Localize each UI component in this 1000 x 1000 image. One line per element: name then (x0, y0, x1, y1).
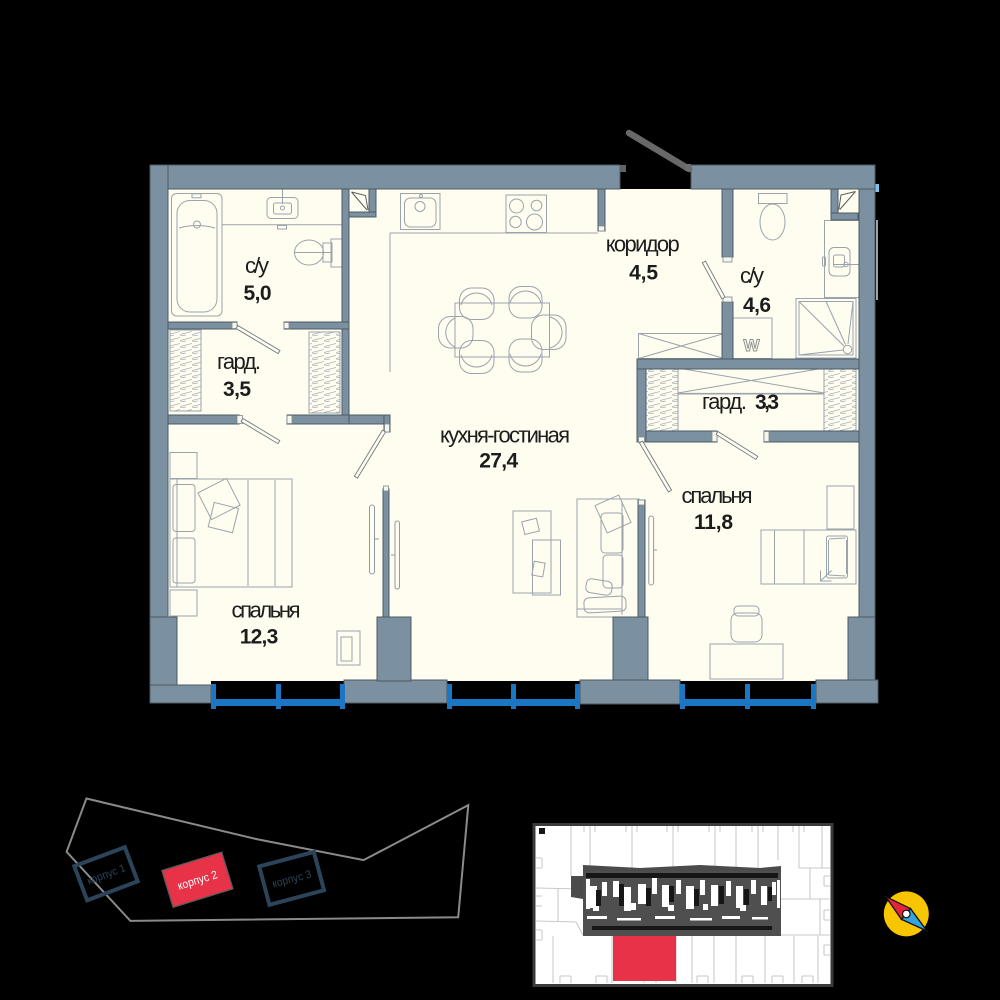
svg-text:спальня: спальня (682, 483, 753, 508)
svg-text:5,0: 5,0 (244, 282, 272, 305)
svg-text:27,4: 27,4 (479, 450, 518, 473)
svg-text:спальня: спальня (232, 598, 301, 623)
svg-text:коридор: коридор (606, 232, 680, 257)
svg-text:с/у: с/у (245, 253, 269, 278)
svg-text:3,5: 3,5 (223, 378, 251, 401)
svg-text:4,5: 4,5 (629, 262, 658, 285)
svg-text:кухня-гостиная: кухня-гостиная (440, 423, 570, 448)
svg-text:12,3: 12,3 (240, 626, 279, 649)
svg-text:11,8: 11,8 (694, 511, 733, 534)
svg-text:с/у: с/у (740, 263, 764, 288)
svg-text:гард.: гард. (702, 389, 747, 414)
svg-text:4,6: 4,6 (743, 294, 771, 317)
svg-text:3,3: 3,3 (755, 391, 779, 414)
svg-text:гард.: гард. (217, 349, 261, 374)
svg-text:W: W (743, 336, 760, 355)
